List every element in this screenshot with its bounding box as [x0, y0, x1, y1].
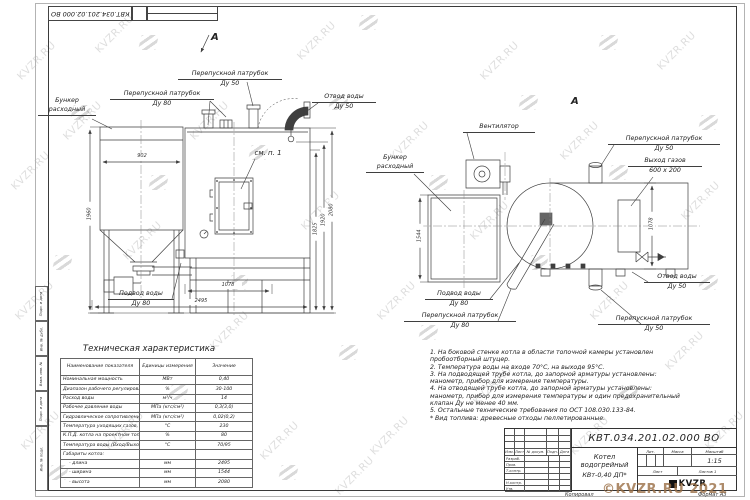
table-cell: 230: [196, 422, 253, 431]
table-cell: - ширина: [61, 468, 140, 477]
label-front-bypass50: Перепускной патрубок Ду 50: [178, 70, 282, 89]
stamp-row-label: Утв.: [505, 486, 525, 492]
mass-cell: [664, 455, 692, 467]
table-row: Диапазон рабочего регулирования%30-100: [61, 385, 253, 394]
stamp-cell: [559, 442, 571, 449]
label-front-bunker: Бункер расходный: [38, 97, 96, 116]
stamp-cell: [547, 442, 559, 449]
table-cell: МПа (кгс/см²): [140, 413, 196, 422]
dim-h1920: 1920: [321, 208, 327, 232]
table-row: Рабочее давление водыМПа (кгс/см²)0,3(3,…: [61, 403, 253, 412]
label-line: Ду 50: [598, 325, 710, 334]
label-line: расходный: [38, 106, 96, 116]
table-cell: - длина: [61, 459, 140, 468]
dim-length: 2495: [187, 299, 215, 305]
label-line: расходный: [366, 163, 424, 173]
table-cell: Рабочее давление воды: [61, 403, 140, 412]
table-cell: мм: [140, 478, 196, 487]
lit-label: Лит.: [638, 448, 664, 455]
front-view-arrow-letter: А: [211, 32, 219, 43]
dim-h2080: 2080: [329, 198, 335, 222]
label-gas-outlet: Выход газов 600 x 200: [628, 157, 702, 176]
label-line: Перепускной патрубок: [404, 312, 516, 322]
label-line: Перепускной патрубок: [178, 70, 282, 80]
mass-label: Масса: [664, 448, 692, 455]
table-cell: - высота: [61, 478, 140, 487]
table-cell: 0,02(0,2): [196, 413, 253, 422]
table-cell: °С: [140, 441, 196, 450]
table-cell: 2495: [196, 459, 253, 468]
stamp-header-cell: № докум.: [525, 449, 547, 456]
table-cell: Расход воды: [61, 394, 140, 403]
label-top-bypass50-bottom: Перепускной патрубок Ду 50: [598, 315, 710, 334]
column-header: Значение: [196, 359, 253, 376]
table-cell: Гидравлическое сопротивление котла: [61, 413, 140, 422]
stamp-cell: [560, 486, 571, 492]
table-cell: мм: [140, 459, 196, 468]
note-line: манометр, прибор для измерения температу…: [430, 393, 732, 400]
label-top-outlet: Отвод воды Ду 50: [644, 273, 710, 292]
label-line: Ду 80: [110, 100, 214, 109]
table-cell: МПа (кгс/см²): [140, 403, 196, 412]
top-view-title-letter: А: [571, 96, 579, 107]
label-line: Ду 50: [178, 80, 282, 89]
scale-value: 1:15: [692, 455, 737, 467]
note-line: пробоотборный штуцер.: [430, 356, 732, 363]
note-line: 2. Температура воды на входе 70°С, на вы…: [430, 364, 732, 371]
table-row: Габариты котла:: [61, 450, 253, 459]
label-front-inlet: Подвод воды Ду 80: [108, 290, 174, 309]
table-row: - длинамм2495: [61, 459, 253, 468]
lit-cell: [647, 455, 656, 467]
table-cell: 70/95: [196, 441, 253, 450]
table-cell: 0,3(3,0): [196, 403, 253, 412]
table-cell: 2080: [196, 478, 253, 487]
table-row: Температура уходящих газов, не более°С23…: [61, 422, 253, 431]
item-name-line1: Котел водогрейный: [572, 453, 637, 469]
table-cell: МВт: [140, 376, 196, 385]
stamp-cell: [525, 442, 547, 449]
scale-label: Масштаб: [692, 448, 737, 455]
spec-table-title: Техническая характеристика: [60, 344, 238, 354]
sheet-label: Лист: [638, 467, 678, 476]
table-cell: 30-100: [196, 385, 253, 394]
stamp-signature-rows: Разраб.Пров.Т.контр.Н.контр.Утв.: [505, 456, 571, 492]
drawing-sheet: KVZR.RUKVZR.RUKVZR.RUKVZR.RUKVZR.RUKVZR.…: [0, 0, 750, 500]
label-line: Ду 80: [108, 300, 174, 309]
table-cell: %: [140, 385, 196, 394]
label-top-bunker: Бункер расходный: [366, 154, 424, 173]
table-cell: [140, 450, 196, 459]
table-cell: 0,40: [196, 376, 253, 385]
label-line: Перепускной патрубок: [598, 315, 710, 325]
table-cell: 14: [196, 394, 253, 403]
label-top-inlet: Подвод воды Ду 80: [425, 290, 493, 309]
label-line: Ду 80: [425, 300, 493, 309]
spec-table-block: Техническая характеристика Наименование …: [60, 344, 238, 488]
label-line: Бункер: [38, 97, 96, 106]
stamp-cell: [515, 442, 525, 449]
stamp-header-cell: Дата: [559, 449, 571, 456]
table-row: Гидравлическое сопротивление котлаМПа (к…: [61, 413, 253, 422]
table-row: - высотамм2080: [61, 478, 253, 487]
stamp-cell: [505, 442, 515, 449]
table-cell: Габариты котла:: [61, 450, 140, 459]
table-cell: Температура уходящих газов, не более: [61, 422, 140, 431]
technical-notes: 1. На боковой стенке котла в области топ…: [430, 349, 732, 422]
dim-hopper-width: 902: [128, 154, 156, 160]
label-line: Ду 50: [608, 145, 720, 154]
table-cell: 80: [196, 431, 253, 440]
table-cell: К.П.Д. котла на проектном топливе: [61, 431, 140, 440]
lit-cell: [656, 455, 664, 467]
copyright-watermark: ©KVZR.RU 2021: [602, 482, 728, 497]
item-name-line2: КВт-0,40 ДП*: [572, 471, 637, 479]
table-row: Расход водым³/ч14: [61, 394, 253, 403]
stamp-change-table: Изм.Лист№ докум.Подп.Дата: [505, 429, 571, 456]
note-line: * Вид топлива: древесные отходы пеллетир…: [430, 415, 732, 422]
label-line: см. п. 1: [240, 149, 296, 158]
table-cell: 1544: [196, 468, 253, 477]
table-cell: °С: [140, 422, 196, 431]
label-line: Отвод воды: [312, 93, 376, 103]
stamp-header-cell: Изм.: [505, 449, 515, 456]
label-line: Выход газов: [628, 157, 702, 167]
label-fan: Вентилятор: [463, 123, 535, 133]
table-cell: Диапазон рабочего регулирования: [61, 385, 140, 394]
table-cell: [196, 450, 253, 459]
table-row: Номинальная мощностьМВт0,40: [61, 376, 253, 385]
table-cell: Номинальная мощность: [61, 376, 140, 385]
table-cell: мм: [140, 468, 196, 477]
column-header: Наименование показателя: [61, 359, 140, 376]
table-header-row: Наименование показателяЕдиницы измерения…: [61, 359, 253, 376]
dim-h1825: 1825: [313, 217, 319, 241]
label-line: Подвод воды: [108, 290, 174, 300]
stamp-cell: [525, 486, 549, 492]
label-line: Ду 80: [404, 322, 516, 331]
dim-top-pitch: 1078: [649, 212, 655, 236]
stamp-header-cell: Подп.: [547, 449, 559, 456]
column-header: Единицы измерения: [140, 359, 196, 376]
label-line: Вентилятор: [463, 123, 535, 133]
note-line: 4. На отводящей трубе котла, до запорной…: [430, 385, 732, 392]
dim-width-1544: 1544: [417, 224, 423, 248]
table-row: Температура воды (Вход/Выход)°С70/95: [61, 441, 253, 450]
dim-hopper-height: 1960: [87, 202, 93, 226]
table-cell: Температура воды (Вход/Выход): [61, 441, 140, 450]
label-line: Перепускной патрубок: [110, 90, 214, 100]
label-line: Бункер: [366, 154, 424, 163]
stamp-cell: [549, 486, 560, 492]
stamp-header-cell: Лист: [515, 449, 525, 456]
table-row: К.П.Д. котла на проектном топливе%80: [61, 431, 253, 440]
sheets-label: Листов 1: [678, 467, 737, 476]
note-line: 5. Остальные технические требования по О…: [430, 407, 732, 414]
label-line: Отвод воды: [644, 273, 710, 283]
label-line: Перепускной патрубок: [608, 135, 720, 145]
label-front-outlet: Отвод воды Ду 50: [312, 93, 376, 112]
footer-copied: Копировал: [565, 492, 594, 498]
label-top-bypass80: Перепускной патрубок Ду 80: [404, 312, 516, 331]
lit-cell: [638, 455, 647, 467]
label-top-bypass50: Перепускной патрубок Ду 50: [608, 135, 720, 154]
stamp-doc-number: КВТ.034.201.02.000 ВО: [571, 429, 736, 448]
table-cell: м³/ч: [140, 394, 196, 403]
spec-table: Наименование показателяЕдиницы измерения…: [60, 358, 253, 488]
label-line: Ду 50: [312, 103, 376, 112]
label-front-bypass80: Перепускной патрубок Ду 80: [110, 90, 214, 109]
label-line: 600 x 200: [628, 167, 702, 176]
label-line: Ду 50: [644, 283, 710, 292]
label-line: Подвод воды: [425, 290, 493, 300]
label-see-note: см. п. 1: [240, 149, 296, 158]
table-row: - ширинамм1544: [61, 468, 253, 477]
dim-front-pitch: 1078: [214, 283, 242, 289]
table-cell: %: [140, 431, 196, 440]
